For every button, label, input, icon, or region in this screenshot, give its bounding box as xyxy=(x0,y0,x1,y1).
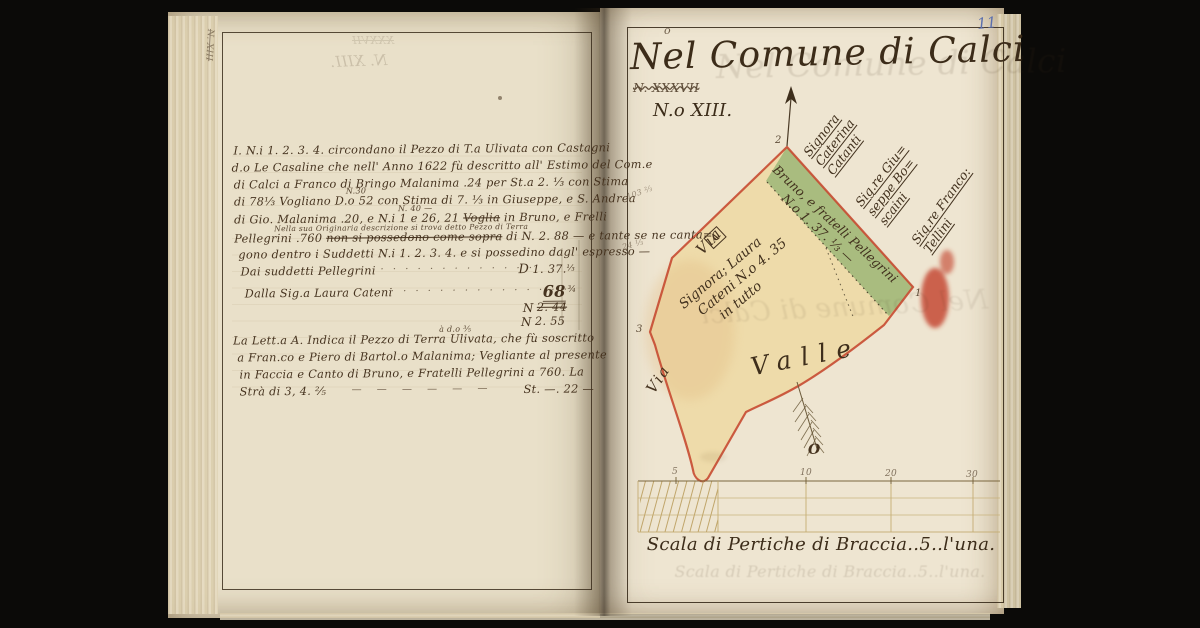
manuscript-text-block: I. N.i 1. 2. 3. 4. circondano il Pezzo d… xyxy=(228,0,594,422)
scale-tick-10: 10 xyxy=(800,468,812,478)
line6-post: di N. 2. 88 — e tante se ne canta= xyxy=(502,228,713,243)
map-title: Nel Comune di Calci xyxy=(630,29,1026,78)
left-page-edge-stack xyxy=(168,16,218,614)
paragraph2-line4: Strà di 3, 4. ⅖ xyxy=(240,385,327,399)
paragraph1-line3: di Calci a Franco di Bringo Malanima .24… xyxy=(234,175,629,191)
totals-row1-leader: · · · · · · · · · · · · · xyxy=(380,263,535,275)
scale-caption: Scala di Pertiche di Braccia..5..l'una. xyxy=(642,534,1000,555)
parcel-letter-a: A xyxy=(708,230,723,245)
scale-tick-20: 20 xyxy=(885,469,897,479)
paragraph1-line1: I. N.i 1. 2. 3. 4. circondano il Pezzo d… xyxy=(233,141,610,157)
sheet-number: N.o XIII. xyxy=(653,100,732,121)
totals-row2-label: Dalla Sig.a Laura Cateni xyxy=(245,286,393,300)
paragraph1-line4: di 78⅓ Vogliano D.o 52 con Stima di 7. ⅓… xyxy=(234,192,636,209)
scale-tick-5: 5 xyxy=(672,467,678,477)
line6-struck-phrase: non si possedono come sopra xyxy=(326,230,502,245)
totals-row1-currency: D xyxy=(518,262,529,277)
totals-row3-prefix: N xyxy=(523,301,534,315)
struck-sheet-number: N. XXXVII xyxy=(633,80,699,95)
fore-edge-mark: N. XIII xyxy=(203,29,215,62)
paragraph2-line4-leader: — — — — — — xyxy=(352,383,494,395)
totals-row1-fraction: ⅓ xyxy=(566,264,575,274)
paragraph2-line2: a Fran.co e Piero di Bartol.o Malanima; … xyxy=(237,348,607,364)
paragraph2-line4-amount: St. —. 22 — xyxy=(524,382,595,396)
scale-tick-30: 30 xyxy=(966,470,978,480)
totals-row2-fraction: ¾ xyxy=(568,285,577,295)
scale-caption-ghost: Scala di Pertiche di Braccia..5..l'una. xyxy=(660,562,1000,581)
paragraph2-line3: in Faccia e Canto di Bruno, e Fratelli P… xyxy=(239,365,584,381)
paragraph1-line2: d.o Le Casaline che nell' Anno 1622 fù d… xyxy=(232,158,653,175)
corner-number-3: 3 xyxy=(636,324,643,335)
manuscript-photo: N. XIII XXXVII N. XIII. I. N.i 1. 2. 3. … xyxy=(0,0,1200,628)
compass-south-letter: O xyxy=(808,442,821,458)
page-number: 11 xyxy=(976,13,997,33)
paragraph1-line7: gono dentro i Suddetti N.i 1. 2. 3. 4. e… xyxy=(238,245,650,262)
totals-row1-label: Dai suddetti Pellegrini xyxy=(240,264,375,278)
line6-pre: Pellegrini .760 xyxy=(234,232,326,246)
totals-row1-amount: 1. 37. xyxy=(532,263,566,276)
corner-number-2: 2 xyxy=(775,135,782,146)
ink-speck xyxy=(498,96,502,100)
totals-row4-prefix: N xyxy=(521,315,532,329)
paper-smudge xyxy=(700,452,726,462)
paragraph2-line1: La Lett.a A. Indica il Pezzo di Terra Ul… xyxy=(233,331,594,347)
totals-row4-amount: 2. 55 xyxy=(535,315,565,328)
title-superscript-o: o xyxy=(664,24,671,37)
totals-row3-amount-struck: 2. 44 xyxy=(537,301,567,314)
